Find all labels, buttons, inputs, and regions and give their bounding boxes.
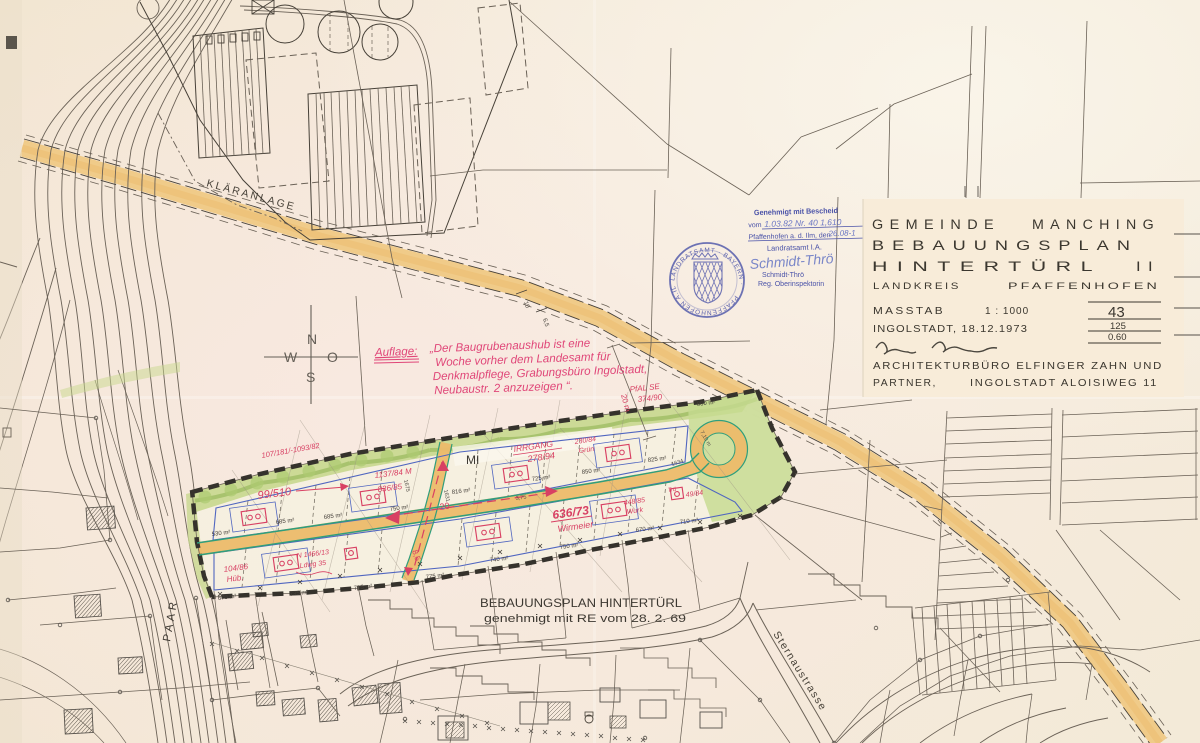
- svg-text:Reg. Oberinspektorin: Reg. Oberinspektorin: [758, 281, 824, 288]
- svg-text:0.60: 0.60: [1108, 332, 1127, 343]
- svg-text:MI: MI: [466, 453, 479, 467]
- svg-text:II: II: [1136, 259, 1160, 274]
- svg-text:ARCHITEKTURBÜRO ELFINGER ZAH: ARCHITEKTURBÜRO ELFINGER ZAHN UND: [873, 360, 1163, 372]
- svg-text:20: 20: [439, 501, 450, 512]
- svg-text:GEMEINDE: GEMEINDE: [872, 217, 1000, 232]
- svg-text:O: O: [327, 349, 338, 365]
- svg-text:LANDKREIS: LANDKREIS: [873, 281, 961, 291]
- svg-text:MANCHING: MANCHING: [1032, 217, 1160, 232]
- svg-text:vom: vom: [748, 222, 762, 229]
- svg-text:125: 125: [1110, 321, 1126, 332]
- svg-text:BEBAUUNGSPLAN HINTERTÜRL: BEBAUUNGSPLAN HINTERTÜRL: [480, 596, 682, 610]
- svg-text:26.08-1: 26.08-1: [827, 229, 855, 239]
- svg-text:MASSTAB: MASSTAB: [873, 306, 945, 317]
- svg-text:S: S: [306, 369, 315, 385]
- svg-text:HINTERTÜRL: HINTERTÜRL: [872, 259, 1102, 274]
- svg-text:INGOLSTADT, 18.12.1973: INGOLSTADT, 18.12.1973: [873, 324, 1028, 335]
- svg-text:Auflage:: Auflage:: [374, 345, 418, 360]
- svg-text:1 : 1000: 1 : 1000: [985, 306, 1029, 317]
- svg-text:INGOLSTADT ALOISIWEG 11: INGOLSTADT ALOISIWEG 11: [970, 378, 1158, 389]
- svg-text:Trü: Trü: [667, 487, 677, 494]
- svg-text:genehmigt mit RE vom 28. 2. 69: genehmigt mit RE vom 28. 2. 69: [484, 613, 686, 625]
- svg-text:PARTNER,: PARTNER,: [873, 378, 937, 389]
- svg-text:43: 43: [1108, 304, 1125, 321]
- svg-text:W: W: [284, 349, 298, 365]
- svg-text:Schmidt-Thrö: Schmidt-Thrö: [762, 272, 804, 279]
- svg-text:N: N: [307, 331, 317, 347]
- svg-text:PFAFFENHOFEN: PFAFFENHOFEN: [1008, 281, 1160, 291]
- svg-text:BEBAUUNGSPLAN: BEBAUUNGSPLAN: [872, 238, 1138, 253]
